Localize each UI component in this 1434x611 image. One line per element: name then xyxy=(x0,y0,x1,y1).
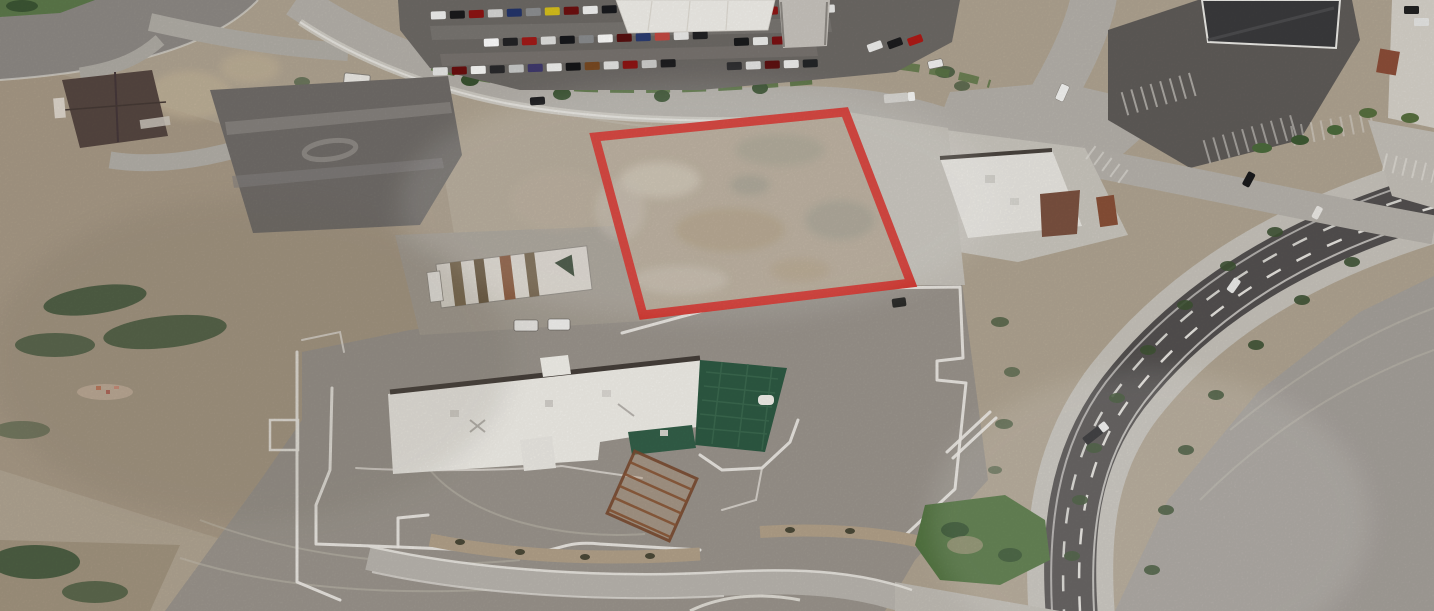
aerial-photo xyxy=(0,0,1434,611)
photo-grain xyxy=(0,0,1434,611)
map-viewport[interactable] xyxy=(0,0,1434,611)
